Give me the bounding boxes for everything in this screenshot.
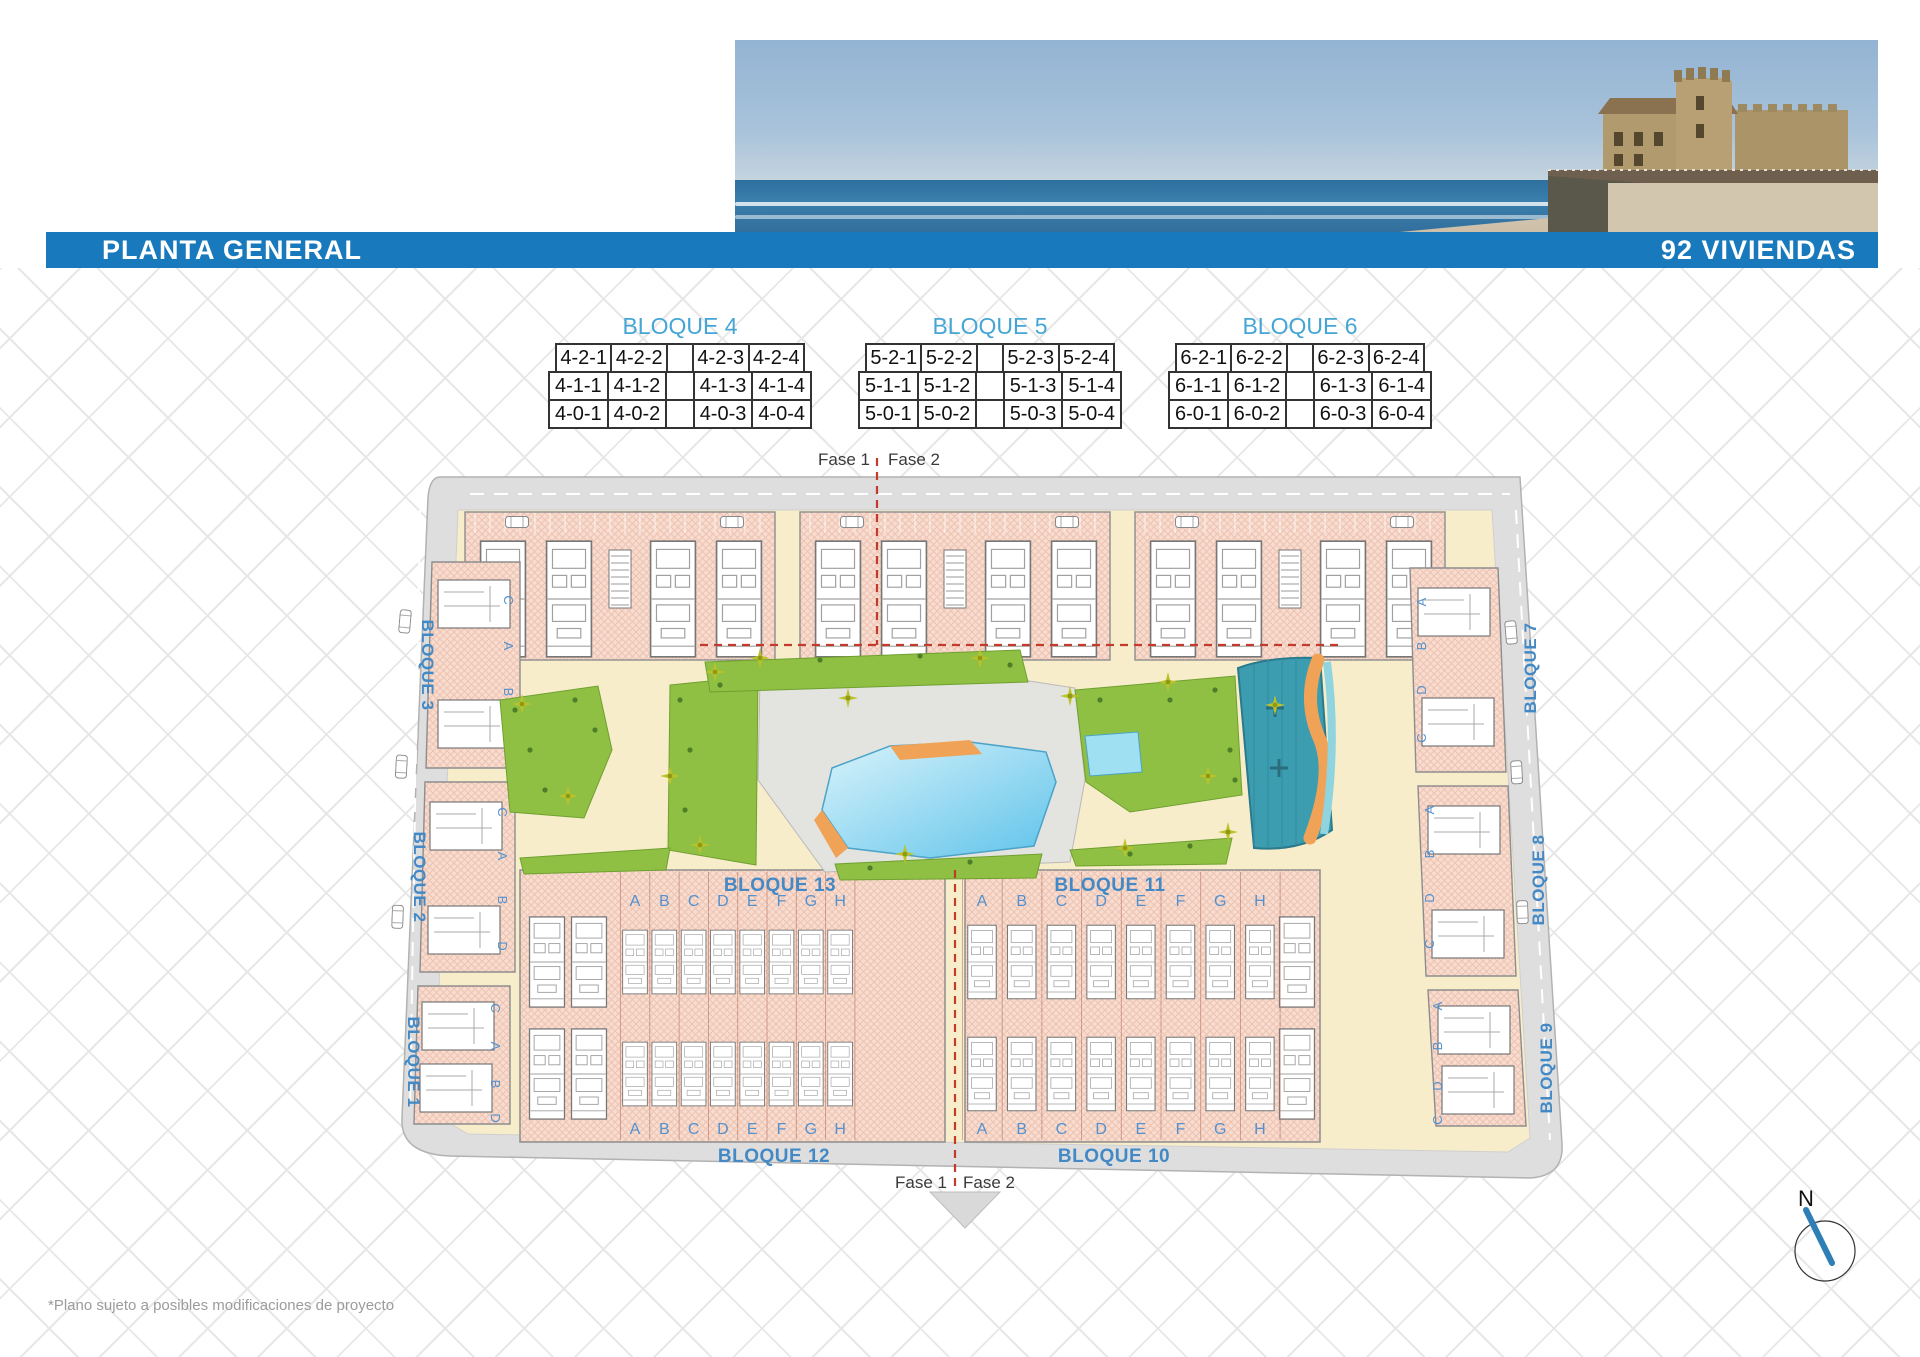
unit-letter: C bbox=[488, 1003, 503, 1012]
unit-plan bbox=[740, 930, 765, 994]
car-icon bbox=[1511, 761, 1523, 785]
unit-plan bbox=[1127, 1037, 1156, 1111]
unit-plan bbox=[1007, 925, 1035, 999]
block-2-label: BLOQUE 2 bbox=[410, 832, 429, 923]
legend-rows-floor1-0: 6-1-16-1-26-1-36-1-46-0-16-0-26-0-36-0-4 bbox=[1168, 371, 1432, 429]
unit-plan bbox=[530, 917, 565, 1007]
legend-table-title: BLOQUE 5 bbox=[858, 313, 1122, 343]
car-icon bbox=[392, 905, 404, 928]
unit-code-cell: 6-1-2 bbox=[1229, 373, 1288, 399]
unit-letter: A bbox=[1430, 1001, 1445, 1010]
photo-castle-tower bbox=[1548, 52, 1878, 232]
unit-plan bbox=[572, 917, 607, 1007]
unit-code-cell: 4-1-2 bbox=[609, 373, 668, 399]
unit-letter: C bbox=[1422, 939, 1437, 948]
unit-plan bbox=[430, 802, 502, 850]
unit-letter: G bbox=[805, 893, 817, 910]
block-3-label: BLOQUE 3 bbox=[418, 620, 437, 711]
unit-plan bbox=[1442, 1066, 1514, 1114]
unit-letter: C bbox=[1430, 1115, 1445, 1124]
unit-code-cell: 6-2-3 bbox=[1314, 345, 1369, 371]
central-building-blocks bbox=[520, 870, 1320, 1142]
unit-plan bbox=[420, 1064, 492, 1112]
north-label: N bbox=[1798, 1186, 1814, 1212]
disclaimer-footnote: *Plano sujeto a posibles modificaciones … bbox=[48, 1297, 394, 1314]
unit-plan bbox=[1206, 925, 1235, 999]
unit-plan bbox=[623, 1042, 648, 1106]
unit-code-cell: 4-2-4 bbox=[750, 345, 803, 371]
shrub-dot bbox=[717, 682, 722, 687]
unit-plan bbox=[1428, 806, 1500, 854]
unit-plan bbox=[1127, 925, 1156, 999]
unit-letter: H bbox=[834, 893, 846, 910]
shrub-dot bbox=[1097, 697, 1102, 702]
unit-plan bbox=[828, 930, 853, 994]
unit-letter: B bbox=[659, 1121, 670, 1138]
car-icon bbox=[1505, 621, 1518, 645]
unit-plan bbox=[1047, 1037, 1076, 1111]
unit-letter: A bbox=[495, 852, 510, 861]
unit-letter: D bbox=[1422, 893, 1437, 902]
unit-plan bbox=[816, 541, 861, 657]
unit-plan bbox=[428, 906, 500, 954]
legend-row-floor2: 6-2-16-2-26-2-36-2-4 bbox=[1175, 343, 1425, 373]
unit-code-cell: 4-1-3 bbox=[695, 373, 754, 399]
shrub-dot bbox=[572, 697, 577, 702]
unit-code-cell: 6-1-4 bbox=[1373, 373, 1430, 399]
unit-plan bbox=[769, 930, 794, 994]
unit-code-cell: 4-0-2 bbox=[609, 401, 668, 427]
shrub-dot bbox=[682, 807, 687, 812]
unit-letter: C bbox=[688, 893, 700, 910]
shrub-dot bbox=[527, 747, 532, 752]
unit-plan bbox=[422, 1002, 494, 1050]
main-pool bbox=[822, 742, 1056, 858]
unit-letter: F bbox=[1176, 1121, 1186, 1138]
unit-code-cell: 6-0-3 bbox=[1315, 401, 1374, 427]
unit-code-cell bbox=[667, 373, 694, 399]
unit-code-cell: 4-0-4 bbox=[753, 401, 810, 427]
unit-code-cell: 5-2-2 bbox=[922, 345, 977, 371]
legend-row-floor0: 4-0-14-0-24-0-34-0-4 bbox=[550, 399, 810, 427]
shrub-dot bbox=[817, 657, 822, 662]
unit-plan bbox=[828, 1042, 853, 1106]
unit-code-cell: 4-1-1 bbox=[550, 373, 609, 399]
unit-letter: H bbox=[834, 1121, 846, 1138]
unit-code-cell: 6-1-1 bbox=[1170, 373, 1229, 399]
unit-code-cell: 6-1-3 bbox=[1315, 373, 1374, 399]
unit-letter: F bbox=[777, 893, 787, 910]
stair-core bbox=[609, 550, 631, 608]
shrub-dot bbox=[687, 747, 692, 752]
car-icon bbox=[1517, 901, 1529, 924]
shrub-dot bbox=[592, 727, 597, 732]
unit-letter: B bbox=[495, 896, 510, 905]
beach-photo bbox=[735, 40, 1878, 232]
unit-letter: A bbox=[488, 1042, 503, 1051]
unit-code-cell: 4-0-1 bbox=[550, 401, 609, 427]
legend-table-title: BLOQUE 4 bbox=[548, 313, 812, 343]
unit-letter: B bbox=[488, 1080, 503, 1089]
block-7-label: BLOQUE 7 bbox=[1521, 623, 1540, 714]
unit-letter: B bbox=[1016, 893, 1027, 910]
page-title: PLANTA GENERAL bbox=[46, 235, 362, 266]
unit-letter: C bbox=[501, 595, 516, 604]
car-icon bbox=[1391, 517, 1414, 528]
shrub-dot bbox=[1187, 843, 1192, 848]
unit-plan bbox=[681, 1042, 706, 1106]
shrub-dot bbox=[512, 707, 517, 712]
unit-plan bbox=[1087, 1037, 1116, 1111]
unit-plan bbox=[1087, 925, 1116, 999]
car-icon bbox=[721, 517, 744, 528]
unit-code-cell: 5-0-1 bbox=[860, 401, 919, 427]
block-10-label: BLOQUE 10 bbox=[1058, 1146, 1170, 1167]
unit-letter: G bbox=[1214, 1121, 1226, 1138]
unit-letter: D bbox=[495, 941, 510, 950]
unit-letter: F bbox=[1176, 893, 1186, 910]
unit-code-cell: 5-1-3 bbox=[1005, 373, 1064, 399]
unit-letter: E bbox=[747, 893, 758, 910]
unit-code-cell: 4-0-3 bbox=[695, 401, 754, 427]
unit-code-cell bbox=[977, 401, 1004, 427]
unit-code-cell: 4-2-3 bbox=[694, 345, 749, 371]
legend-row-floor2: 5-2-15-2-25-2-35-2-4 bbox=[865, 343, 1115, 373]
unit-code-cell: 5-2-1 bbox=[867, 345, 922, 371]
unit-letter: A bbox=[1422, 805, 1437, 814]
unit-plan bbox=[681, 930, 706, 994]
block-11-label: BLOQUE 11 bbox=[1054, 875, 1165, 896]
unit-letter: D bbox=[1414, 685, 1429, 694]
unit-letter: H bbox=[1254, 893, 1266, 910]
legend-row-floor0: 6-0-16-0-26-0-36-0-4 bbox=[1170, 399, 1430, 427]
block-9-label: BLOQUE 9 bbox=[1537, 1023, 1556, 1114]
unit-letter: A bbox=[1414, 597, 1429, 606]
unit-letter: D bbox=[1095, 893, 1107, 910]
entrance-marker bbox=[930, 1192, 1000, 1228]
unit-letter: A bbox=[501, 642, 516, 651]
unit-plan bbox=[1047, 925, 1076, 999]
unit-code-cell: 5-2-3 bbox=[1004, 345, 1059, 371]
site-plan: CABDCABDCABDABDCABDCABDC bbox=[370, 450, 1570, 1250]
unit-plan bbox=[1321, 541, 1366, 657]
unit-letter: B bbox=[501, 688, 516, 697]
unit-plan bbox=[1007, 1037, 1035, 1111]
unit-plan bbox=[1432, 910, 1504, 958]
compass-needle bbox=[1806, 1210, 1832, 1263]
unit-code-cell: 5-1-4 bbox=[1063, 373, 1120, 399]
unit-letter: C bbox=[1056, 893, 1068, 910]
unit-plan bbox=[1280, 1029, 1315, 1119]
shrub-dot bbox=[1212, 687, 1217, 692]
top-building-row bbox=[465, 512, 1445, 660]
unit-code-cell: 5-1-1 bbox=[860, 373, 919, 399]
unit-plan bbox=[623, 930, 648, 994]
unit-plan bbox=[986, 541, 1031, 657]
legend-row-floor2: 4-2-14-2-24-2-34-2-4 bbox=[555, 343, 805, 373]
unit-letter: G bbox=[1214, 893, 1226, 910]
unit-letter: B bbox=[1414, 642, 1429, 651]
shrub-dot bbox=[1127, 851, 1132, 856]
unit-letter: C bbox=[1056, 1121, 1068, 1138]
shrub-dot bbox=[677, 697, 682, 702]
unit-plan bbox=[547, 541, 592, 657]
legend-row-floor1: 5-1-15-1-25-1-35-1-4 bbox=[860, 373, 1120, 399]
unit-plan bbox=[968, 925, 997, 999]
unit-plan bbox=[1166, 925, 1195, 999]
unit-plan bbox=[769, 1042, 794, 1106]
legend-table-bloque-6: BLOQUE 66-2-16-2-26-2-36-2-46-1-16-1-26-… bbox=[1168, 313, 1432, 429]
unit-letter: A bbox=[630, 1121, 641, 1138]
unit-plan bbox=[968, 1037, 997, 1111]
shrub-dot bbox=[917, 653, 922, 658]
unit-code-cell: 6-2-2 bbox=[1232, 345, 1287, 371]
unit-plan bbox=[438, 580, 510, 628]
unit-plan bbox=[711, 930, 736, 994]
stair-core bbox=[944, 550, 966, 608]
unit-plan bbox=[1151, 541, 1196, 657]
unit-plan bbox=[1418, 588, 1490, 636]
car-icon bbox=[841, 517, 864, 528]
unit-plan bbox=[652, 930, 677, 994]
unit-letter: D bbox=[717, 893, 729, 910]
shrub-dot bbox=[967, 859, 972, 864]
unit-letter: D bbox=[1095, 1121, 1107, 1138]
unit-plan bbox=[1422, 698, 1494, 746]
unit-plan bbox=[652, 1042, 677, 1106]
unit-code-cell bbox=[667, 401, 694, 427]
unit-plan bbox=[1246, 925, 1275, 999]
unit-plan bbox=[1217, 541, 1262, 657]
unit-code-cell: 6-2-4 bbox=[1370, 345, 1423, 371]
castle-beach-sand bbox=[1608, 183, 1878, 232]
unit-plan bbox=[1280, 917, 1315, 1007]
unit-code-cell: 5-0-3 bbox=[1005, 401, 1064, 427]
unit-letter: H bbox=[1254, 1121, 1266, 1138]
unit-code-cell: 5-0-4 bbox=[1063, 401, 1120, 427]
unit-code-cell bbox=[1287, 373, 1314, 399]
unit-code-cell: 4-2-2 bbox=[612, 345, 667, 371]
unit-plan bbox=[1438, 1006, 1510, 1054]
car-icon bbox=[1176, 517, 1199, 528]
units-count-label: 92 VIVIENDAS bbox=[1661, 235, 1878, 266]
fase1-label-bottom: Fase 1 bbox=[895, 1173, 947, 1192]
unit-letter: C bbox=[495, 807, 510, 816]
unit-code-cell bbox=[668, 345, 694, 371]
unit-code-cell: 6-0-4 bbox=[1373, 401, 1430, 427]
block-12-label: BLOQUE 12 bbox=[718, 1146, 830, 1167]
unit-plan bbox=[530, 1029, 565, 1119]
north-compass: N bbox=[1780, 1188, 1910, 1318]
unit-code-cell bbox=[978, 345, 1004, 371]
block-8-label: BLOQUE 8 bbox=[1529, 835, 1548, 926]
unit-letter: B bbox=[1422, 850, 1437, 859]
legend-rows-floor1-0: 4-1-14-1-24-1-34-1-44-0-14-0-24-0-34-0-4 bbox=[548, 371, 812, 429]
car-icon bbox=[398, 609, 411, 633]
unit-letter: A bbox=[977, 893, 988, 910]
unit-code-cell bbox=[1288, 345, 1314, 371]
shrub-dot bbox=[1167, 697, 1172, 702]
unit-code-cell: 5-0-2 bbox=[919, 401, 978, 427]
unit-letter: B bbox=[1430, 1042, 1445, 1051]
unit-letter: E bbox=[1135, 893, 1146, 910]
unit-plan bbox=[438, 700, 510, 748]
block-1-label: BLOQUE 1 bbox=[404, 1017, 423, 1108]
unit-letter: G bbox=[805, 1121, 817, 1138]
unit-code-cell bbox=[1287, 401, 1314, 427]
unit-letter: C bbox=[688, 1121, 700, 1138]
unit-letter: C bbox=[1414, 733, 1429, 742]
shrub-dot bbox=[867, 865, 872, 870]
legend-table-bloque-4: BLOQUE 44-2-14-2-24-2-34-2-44-1-14-1-24-… bbox=[548, 313, 812, 429]
unit-plan bbox=[1206, 1037, 1235, 1111]
legend-rows-floor1-0: 5-1-15-1-25-1-35-1-45-0-15-0-25-0-35-0-4 bbox=[858, 371, 1122, 429]
shrub-dot bbox=[1227, 747, 1232, 752]
unit-letter: D bbox=[1430, 1081, 1445, 1090]
unit-plan bbox=[740, 1042, 765, 1106]
legend-row-floor1: 6-1-16-1-26-1-36-1-4 bbox=[1170, 373, 1430, 399]
unit-code-cell: 5-2-4 bbox=[1060, 345, 1113, 371]
unit-plan bbox=[572, 1029, 607, 1119]
unit-plan bbox=[711, 1042, 736, 1106]
unit-letter: D bbox=[717, 1121, 729, 1138]
car-icon bbox=[506, 517, 529, 528]
spa-pool bbox=[1085, 732, 1142, 776]
shrub-dot bbox=[1232, 777, 1237, 782]
unit-letter: E bbox=[1135, 1121, 1146, 1138]
unit-plan bbox=[798, 930, 823, 994]
car-icon bbox=[1056, 517, 1079, 528]
unit-letter: F bbox=[777, 1121, 787, 1138]
legend-table-bloque-5: BLOQUE 55-2-15-2-25-2-35-2-45-1-15-1-25-… bbox=[858, 313, 1122, 429]
legend-row-floor1: 4-1-14-1-24-1-34-1-4 bbox=[550, 373, 810, 399]
unit-code-cell: 6-0-2 bbox=[1229, 401, 1288, 427]
unit-letter: D bbox=[488, 1113, 503, 1122]
castle-wall bbox=[1735, 110, 1848, 170]
car-icon bbox=[395, 755, 407, 779]
header-bar: PLANTA GENERAL 92 VIVIENDAS bbox=[46, 232, 1878, 268]
unit-plan bbox=[1052, 541, 1097, 657]
garden-park bbox=[668, 676, 758, 865]
unit-plan bbox=[798, 1042, 823, 1106]
unit-plan bbox=[717, 541, 762, 657]
unit-code-cell: 6-2-1 bbox=[1177, 345, 1232, 371]
unit-letter: B bbox=[659, 893, 670, 910]
unit-code-cell: 5-1-2 bbox=[919, 373, 978, 399]
unit-code-cell: 4-2-1 bbox=[557, 345, 612, 371]
fase2-label-bottom: Fase 2 bbox=[963, 1173, 1015, 1192]
legend-row-floor0: 5-0-15-0-25-0-35-0-4 bbox=[860, 399, 1120, 427]
unit-code-cell bbox=[977, 373, 1004, 399]
shrub-dot bbox=[1007, 662, 1012, 667]
page: PLANTA GENERAL 92 VIVIENDAS BLOQUE 44-2-… bbox=[0, 0, 1920, 1357]
shrub-dot bbox=[542, 787, 547, 792]
unit-letter: E bbox=[747, 1121, 758, 1138]
unit-plan bbox=[1166, 1037, 1195, 1111]
unit-plan bbox=[882, 541, 927, 657]
unit-letter: B bbox=[1016, 1121, 1027, 1138]
stair-core bbox=[1279, 550, 1301, 608]
legend-table-title: BLOQUE 6 bbox=[1168, 313, 1432, 343]
unit-code-cell: 4-1-4 bbox=[753, 373, 810, 399]
unit-letter: A bbox=[630, 893, 641, 910]
unit-letter: A bbox=[977, 1121, 988, 1138]
unit-plan bbox=[651, 541, 696, 657]
unit-code-cell: 6-0-1 bbox=[1170, 401, 1229, 427]
unit-plan bbox=[1246, 1037, 1275, 1111]
